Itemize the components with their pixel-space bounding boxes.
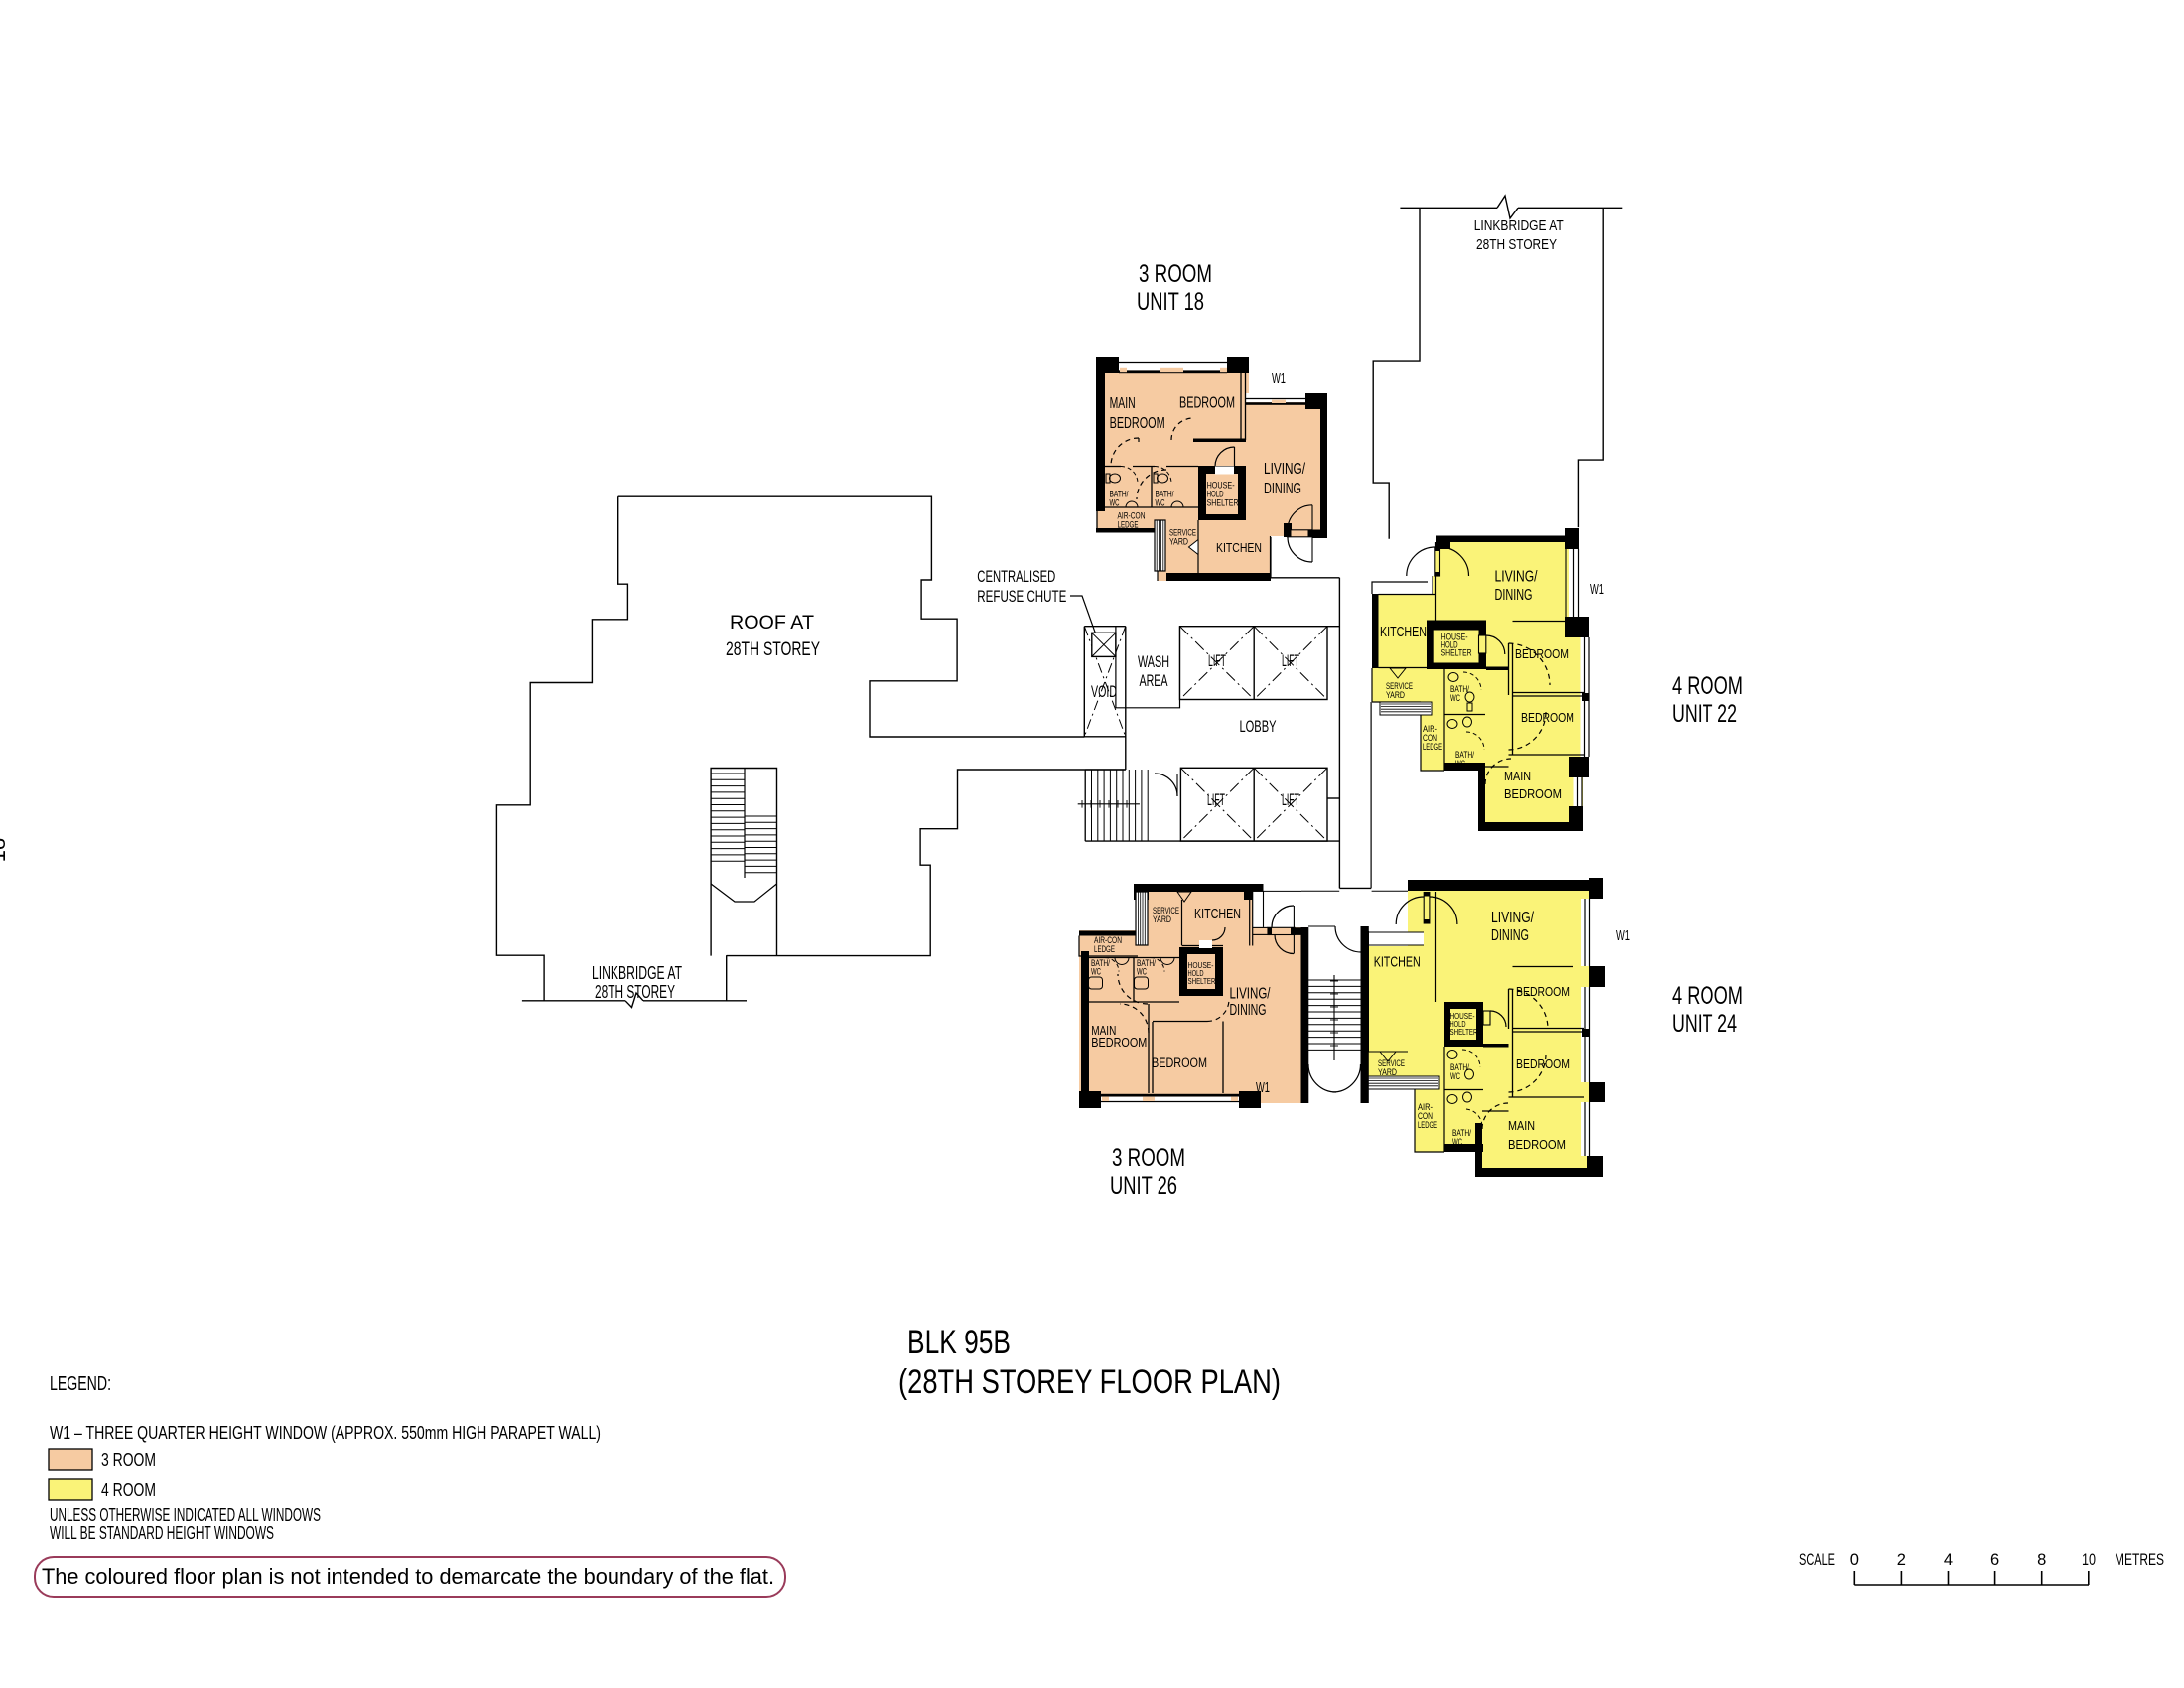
svg-text:BEDROOM: BEDROOM: [1521, 710, 1574, 725]
svg-text:DINING: DINING: [1491, 927, 1529, 944]
svg-text:AREA: AREA: [1140, 672, 1168, 690]
svg-text:3 ROOM: 3 ROOM: [1112, 1144, 1185, 1172]
svg-text:The coloured floor plan is not: The coloured floor plan is not intended …: [42, 1564, 774, 1589]
svg-text:W1: W1: [1616, 927, 1630, 944]
svg-text:LINKBRIDGE AT: LINKBRIDGE AT: [1474, 217, 1564, 234]
svg-text:LIVING/: LIVING/: [1230, 986, 1271, 1003]
svg-text:WC: WC: [1110, 498, 1120, 509]
svg-text:LIFT: LIFT: [1282, 652, 1299, 670]
svg-text:28TH STOREY: 28TH STOREY: [1476, 236, 1557, 253]
svg-text:10: 10: [2082, 1551, 2096, 1569]
svg-text:LIVING/: LIVING/: [1264, 461, 1305, 478]
svg-text:LEDGE: LEDGE: [1094, 944, 1115, 955]
svg-text:4 ROOM: 4 ROOM: [1672, 982, 1743, 1010]
svg-text:BEDROOM: BEDROOM: [1091, 1036, 1147, 1050]
svg-text:BLK 95B: BLK 95B: [907, 1324, 1011, 1361]
svg-text:WC: WC: [1452, 1137, 1462, 1148]
svg-text:WC: WC: [1450, 1071, 1460, 1082]
svg-text:28TH STOREY: 28TH STOREY: [595, 981, 675, 1002]
svg-text:BEDROOM: BEDROOM: [1152, 1055, 1207, 1070]
svg-text:WC: WC: [1091, 967, 1101, 978]
svg-text:SHELTER: SHELTER: [1441, 648, 1472, 658]
svg-text:WC: WC: [1137, 967, 1147, 978]
svg-text:VOID: VOID: [1091, 683, 1117, 701]
svg-text:SHELTER: SHELTER: [1188, 976, 1216, 986]
svg-text:UNIT 18: UNIT 18: [1137, 288, 1204, 316]
svg-text:BEDROOM: BEDROOM: [1504, 786, 1562, 801]
svg-text:BEDROOM: BEDROOM: [1516, 1056, 1570, 1071]
svg-text:6: 6: [1990, 1551, 1999, 1569]
svg-text:2: 2: [1897, 1551, 1906, 1569]
svg-text:BEDROOM: BEDROOM: [1179, 395, 1235, 412]
svg-text:UNLESS OTHERWISE INDICATED ALL: UNLESS OTHERWISE INDICATED ALL WINDOWS: [50, 1505, 321, 1525]
svg-text:4 ROOM: 4 ROOM: [101, 1480, 156, 1500]
svg-text:0: 0: [1850, 1551, 1859, 1569]
svg-text:WC: WC: [1455, 759, 1465, 770]
svg-text:18: 18: [0, 838, 10, 862]
svg-text:KITCHEN: KITCHEN: [1194, 906, 1241, 922]
svg-text:LIFT: LIFT: [1282, 791, 1299, 809]
svg-text:YARD: YARD: [1386, 690, 1405, 701]
svg-text:LEGEND:: LEGEND:: [50, 1373, 111, 1395]
svg-text:3 ROOM: 3 ROOM: [1139, 260, 1212, 288]
svg-text:KITCHEN: KITCHEN: [1216, 541, 1262, 555]
svg-text:METRES: METRES: [2115, 1551, 2164, 1569]
svg-text:WASH: WASH: [1138, 653, 1169, 671]
svg-text:LIFT: LIFT: [1207, 791, 1225, 809]
svg-text:BEDROOM: BEDROOM: [1110, 415, 1165, 432]
svg-text:8: 8: [2037, 1551, 2046, 1569]
svg-text:CENTRALISED: CENTRALISED: [977, 567, 1055, 586]
svg-text:REFUSE CHUTE: REFUSE CHUTE: [977, 587, 1066, 606]
svg-text:3 ROOM: 3 ROOM: [101, 1450, 156, 1470]
svg-text:LEDGE: LEDGE: [1423, 742, 1442, 752]
svg-text:UNIT 26: UNIT 26: [1110, 1172, 1177, 1199]
svg-text:WC: WC: [1156, 498, 1165, 509]
svg-text:LINKBRIDGE AT: LINKBRIDGE AT: [592, 962, 682, 983]
svg-text:4 ROOM: 4 ROOM: [1672, 672, 1743, 700]
svg-text:W1: W1: [1590, 581, 1604, 598]
svg-text:LIFT: LIFT: [1208, 652, 1226, 670]
svg-text:SCALE: SCALE: [1799, 1551, 1835, 1569]
svg-text:DINING: DINING: [1495, 587, 1533, 604]
svg-text:KITCHEN: KITCHEN: [1380, 624, 1427, 640]
svg-text:WC: WC: [1450, 693, 1460, 704]
svg-text:LOBBY: LOBBY: [1240, 718, 1277, 736]
svg-text:LEDGE: LEDGE: [1118, 520, 1139, 531]
svg-text:SHELTER: SHELTER: [1450, 1027, 1478, 1037]
svg-text:DINING: DINING: [1230, 1002, 1267, 1019]
svg-text:YARD: YARD: [1153, 914, 1171, 925]
svg-text:4: 4: [1944, 1551, 1953, 1569]
svg-text:W1: W1: [1256, 1079, 1270, 1096]
svg-text:UNIT 22: UNIT 22: [1672, 700, 1737, 728]
svg-text:MAIN: MAIN: [1508, 1118, 1535, 1133]
svg-text:BEDROOM: BEDROOM: [1516, 984, 1570, 999]
svg-text:ROOF AT: ROOF AT: [730, 613, 814, 633]
svg-text:W1: W1: [1272, 370, 1286, 387]
svg-text:BEDROOM: BEDROOM: [1508, 1137, 1566, 1152]
svg-text:UNIT 24: UNIT 24: [1672, 1010, 1737, 1038]
svg-text:MAIN: MAIN: [1504, 769, 1531, 783]
svg-text:BEDROOM: BEDROOM: [1515, 646, 1569, 661]
svg-text:WILL BE STANDARD HEIGHT WINDOW: WILL BE STANDARD HEIGHT WINDOWS: [50, 1523, 274, 1543]
svg-text:MAIN: MAIN: [1110, 395, 1136, 412]
svg-text:LIVING/: LIVING/: [1491, 910, 1534, 926]
svg-text:SHELTER: SHELTER: [1207, 498, 1239, 509]
svg-text:LIVING/: LIVING/: [1495, 569, 1538, 586]
svg-text:YARD: YARD: [1169, 537, 1188, 548]
svg-text:28TH STOREY: 28TH STOREY: [726, 639, 820, 660]
svg-text:(28TH STOREY FLOOR PLAN): (28TH STOREY FLOOR PLAN): [898, 1363, 1281, 1401]
svg-text:DINING: DINING: [1264, 481, 1301, 497]
svg-text:LEDGE: LEDGE: [1418, 1120, 1437, 1130]
svg-text:W1 – THREE QUARTER HEIGHT WIND: W1 – THREE QUARTER HEIGHT WINDOW (APPROX…: [50, 1423, 601, 1443]
svg-text:KITCHEN: KITCHEN: [1374, 954, 1421, 971]
